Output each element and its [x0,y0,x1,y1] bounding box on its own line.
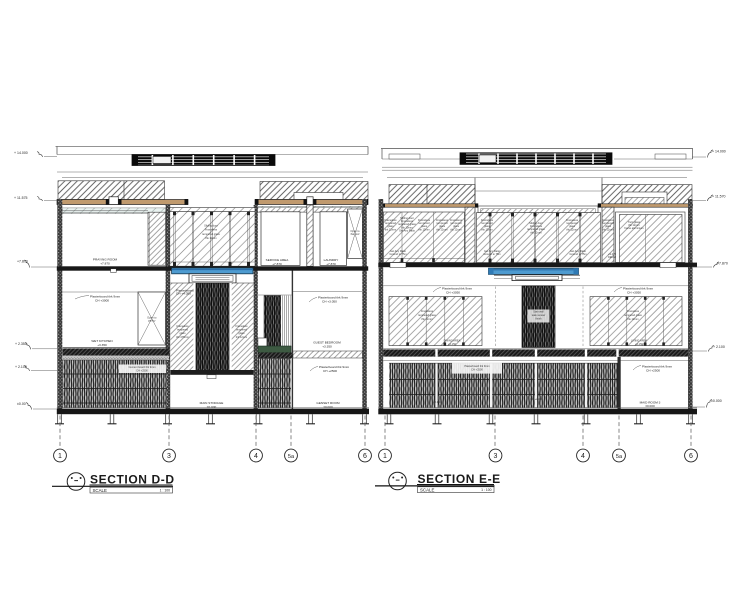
svg-text:3: 3 [167,453,171,460]
svg-text:CH +3000: CH +3000 [95,299,109,303]
svg-text:thk 12mm: thk 12mm [481,227,492,231]
svg-text:4: 4 [581,453,585,460]
svg-text:glass: glass [238,331,245,335]
svg-text:thk 12mm: thk 12mm [450,227,461,231]
svg-text:+7.870: +7.870 [100,261,110,265]
svg-text:Cement board thk 9mm: Cement board thk 9mm [128,365,155,369]
svg-text:6: 6 [689,453,693,460]
svg-text:CH +2500: CH +2500 [530,397,542,401]
svg-text:1 : 100: 1 : 100 [481,488,491,492]
svg-text:+7.870: +7.870 [326,262,336,266]
svg-text:+ 14.000: + 14.000 [712,149,726,153]
svg-text:+ 2.100: + 2.100 [713,345,725,349]
svg-text:4: 4 [254,453,258,460]
svg-text:finish: finish [535,317,542,321]
svg-text:+ 11.575: + 11.575 [14,196,28,200]
svg-text:thk 12mm: thk 12mm [566,227,577,231]
svg-text:thk 12mm: thk 12mm [205,236,216,240]
svg-text:Ground to 75m: Ground to 75m [569,252,586,256]
svg-text:SCALE: SCALE [420,487,434,492]
svg-text:±0.00: ±0.00 [17,402,26,406]
svg-text:Get Any Ratio: Get Any Ratio [399,228,416,232]
svg-text:CH +3050: CH +3050 [627,290,641,294]
svg-text:pantry: pantry [148,319,156,323]
svg-text:DINING AREA: DINING AREA [444,339,461,343]
svg-text:KOI POND: KOI POND [107,401,120,405]
svg-text:thk 12mm: thk 12mm [627,317,638,321]
svg-text:thk 12mm: thk 12mm [421,317,432,321]
svg-text:tempered: tempered [236,328,248,332]
svg-text:Plasterboard thk 9mm: Plasterboard thk 9mm [464,364,489,368]
svg-text:1: 1 [58,453,62,460]
svg-text:Ground to 75m: Ground to 75m [483,252,500,256]
svg-text:Frameless: Frameless [627,309,640,313]
svg-text:+0.150: +0.150 [448,342,457,346]
svg-text:±0.000: ±0.000 [207,405,217,409]
svg-text:Stair wall: Stair wall [533,310,544,314]
svg-text:frame aluminium: frame aluminium [624,226,643,230]
svg-text:+ 14.000: + 14.000 [14,151,28,155]
svg-text:flat roof: flat roof [351,232,360,236]
svg-text:thk 12mm: thk 12mm [602,227,613,231]
svg-text:Frameless: Frameless [205,228,218,232]
svg-text:tempered glass: tempered glass [202,232,220,236]
svg-text:thk 475mm: thk 475mm [176,335,189,339]
svg-text:CH +3050: CH +3050 [446,290,460,294]
svg-text:tempered glass: tempered glass [418,313,436,317]
svg-text:CH +2500: CH +2500 [646,368,660,372]
svg-text:DELIM: DELIM [608,255,616,259]
svg-text:Ground to 75m: Ground to 75m [389,252,406,256]
svg-text:±0.000: ±0.000 [711,399,722,403]
svg-text:thk 12mm: thk 12mm [418,227,429,231]
svg-text:tempered: tempered [177,328,189,332]
svg-text:3: 3 [494,453,498,460]
svg-text:CH +2500: CH +2500 [323,369,337,373]
svg-text:+ 11.570: + 11.570 [712,194,726,198]
svg-text:tempered: tempered [270,298,282,302]
svg-text:±0.000: ±0.000 [323,405,333,409]
svg-text:Sliding door: Sliding door [204,224,218,228]
svg-text:1: 1 [383,453,387,460]
svg-text:thk 12mm: thk 12mm [236,335,247,339]
svg-text:1 : 100: 1 : 100 [160,488,170,492]
svg-text:teak veneer: teak veneer [532,313,546,317]
svg-text:thk 12mm: thk 12mm [385,227,396,231]
svg-text:+7.870: +7.870 [272,262,282,266]
svg-text:+0.150: +0.150 [433,400,442,404]
svg-text:CH +2500: CH +2500 [471,367,483,371]
svg-text:LIVING AREA: LIVING AREA [631,339,647,343]
svg-text:6: 6 [363,453,367,460]
svg-text:Frameless: Frameless [176,324,189,328]
svg-text:glass: glass [179,331,186,335]
svg-text:CH +2500: CH +2500 [136,368,148,372]
svg-text:5a: 5a [616,454,623,460]
svg-text:SCALE: SCALE [93,488,107,493]
svg-text:thk 12mm: thk 12mm [436,227,447,231]
svg-text:tempered glass: tempered glass [624,313,642,317]
svg-text:Frameless: Frameless [235,324,248,328]
svg-text:thk 12mm: thk 12mm [530,230,541,234]
svg-text:+3.350: +3.350 [97,343,107,347]
svg-text:5a: 5a [288,454,295,460]
svg-text:+3.350: +3.350 [322,344,332,348]
svg-text:+0.150: +0.150 [635,342,644,346]
svg-text:CH +4.050: CH +4.050 [176,292,191,296]
svg-text:CH +3.050: CH +3.050 [322,300,337,304]
svg-text:Frameless: Frameless [421,309,434,313]
